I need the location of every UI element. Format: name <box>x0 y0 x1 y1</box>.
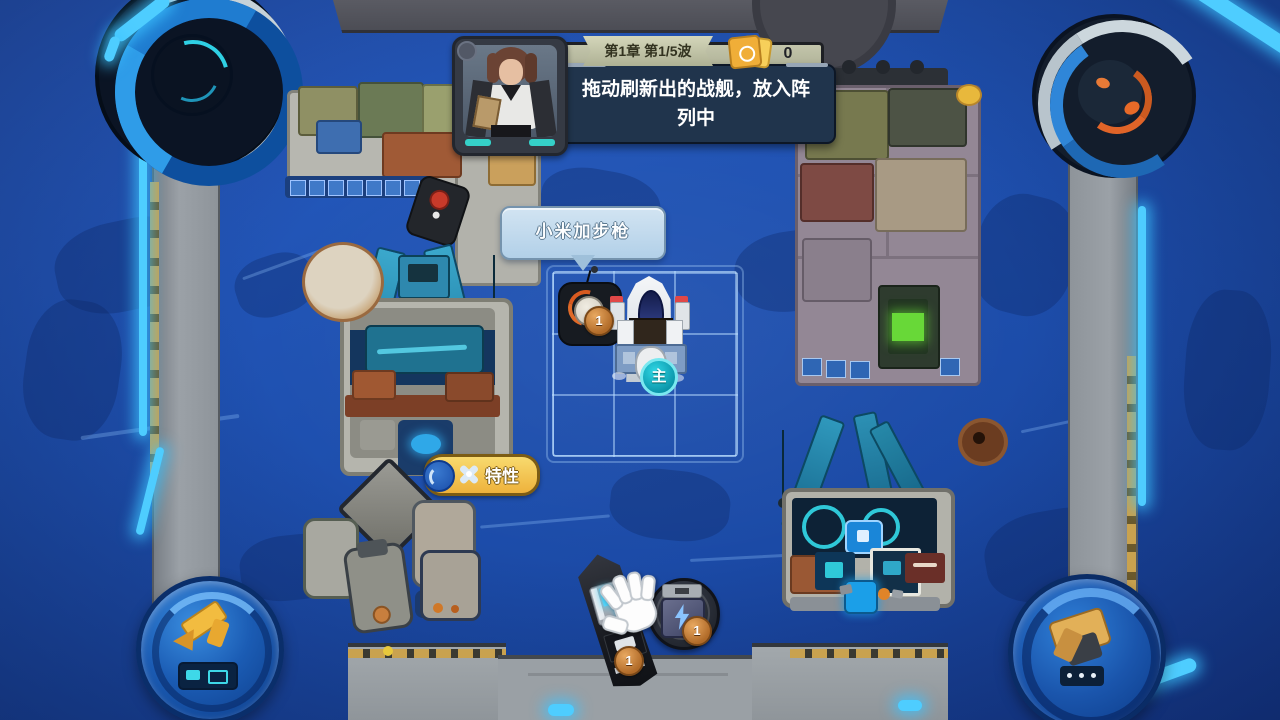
strip-tile <box>290 180 306 196</box>
cargo-container <box>445 372 494 402</box>
portrait-image <box>463 45 557 137</box>
tooltip-text: 小米加步枪 <box>502 208 664 258</box>
emblem-panel <box>178 662 238 690</box>
corner-emblem-bottom-left <box>136 576 274 714</box>
tug-funnel <box>427 187 452 212</box>
advisor-portrait <box>452 36 568 156</box>
strip-tile <box>850 361 870 379</box>
tile-glyph <box>883 561 901 575</box>
bronze-dot <box>372 605 392 625</box>
cab-window <box>408 264 438 282</box>
gold-shell <box>956 84 982 106</box>
card-count: 0 <box>776 45 800 65</box>
deck-ring <box>802 505 846 549</box>
crate-cap <box>356 538 388 558</box>
panel-glyph <box>186 670 200 680</box>
wave-banner-text: 第1章 第1/5波 <box>583 36 713 66</box>
hazard-strip <box>348 649 506 658</box>
deck-tile <box>623 352 635 364</box>
machinery-pipe <box>377 345 467 355</box>
stern-glow <box>411 434 441 454</box>
portrait-face <box>499 59 523 85</box>
level-badge: 1 <box>682 616 712 646</box>
cargo-container <box>888 88 967 147</box>
wave-banner: 第1章 第1/5波 <box>583 36 713 66</box>
corner-emblem-bottom-right <box>1008 574 1156 720</box>
panel-dot <box>1091 673 1096 678</box>
debris <box>891 589 903 599</box>
grid-cell[interactable] <box>676 395 736 455</box>
portrait-emblem <box>457 41 477 61</box>
machinery-box <box>365 325 484 374</box>
coil-hole <box>973 432 985 444</box>
dock-icon-strip <box>285 176 431 198</box>
strip-tile <box>328 180 344 196</box>
emblem-panel <box>1060 666 1104 686</box>
strip-tile <box>826 360 846 378</box>
floating-crate <box>420 550 481 621</box>
corner-turret-top-right <box>1032 14 1188 170</box>
glow-rail-right <box>1138 206 1146 506</box>
cargo-container <box>875 158 967 232</box>
orb-highlight <box>429 466 451 488</box>
portrait-accent-bar <box>529 139 555 146</box>
trait-cross-icon <box>457 462 481 486</box>
strip-tile <box>940 358 960 376</box>
tooltip-pointer <box>571 255 595 271</box>
strip-tile <box>366 180 382 196</box>
crane-cable <box>782 430 784 500</box>
card-icon <box>727 34 773 66</box>
portrait-accent-bar <box>465 139 491 146</box>
cargo-container <box>358 82 424 138</box>
cargo-container <box>802 238 872 302</box>
cargo-container <box>316 120 362 154</box>
arena-wall-bottom-left <box>348 643 506 720</box>
cross-center <box>466 471 472 477</box>
panel-dot <box>1067 673 1072 678</box>
trait-button[interactable]: 特性 <box>424 454 540 496</box>
green-container <box>878 285 940 369</box>
hazard-strip <box>1127 356 1136 608</box>
rail-bump <box>842 60 856 74</box>
hand-finger <box>640 574 657 601</box>
card-glyph <box>738 45 756 63</box>
crane-cab <box>398 255 450 299</box>
trait-label: 特性 <box>485 462 519 487</box>
glow-bump-bottom <box>898 700 922 711</box>
gold-dot <box>383 646 393 656</box>
green-glow-window <box>892 313 924 341</box>
portrait-hair-side <box>525 53 537 83</box>
level-badge: 1 <box>584 306 614 336</box>
corner-turret-top-left <box>95 0 283 166</box>
cargo-container <box>352 370 396 400</box>
portrait-hair-side <box>487 53 499 83</box>
cargo-container <box>382 132 462 178</box>
red-panel <box>905 553 945 583</box>
orange-dot <box>433 603 443 613</box>
bracket-slot <box>675 588 689 594</box>
cargo-container <box>800 163 874 222</box>
hazard-strip <box>150 182 159 474</box>
rail-bump <box>876 60 890 74</box>
strip-tile <box>309 180 325 196</box>
portrait-skirt <box>491 125 531 137</box>
hazard-strip <box>790 649 948 658</box>
tile-glyph <box>857 530 869 542</box>
grid-cell[interactable] <box>615 395 675 455</box>
dialogue-text: 拖动刷新出的战舰，放入阵列中 <box>576 76 816 133</box>
tug-light <box>432 211 441 220</box>
main-badge: 主 <box>640 358 678 396</box>
wake-foam <box>612 372 626 380</box>
trait-orb-icon <box>423 460 455 492</box>
panel-glyph <box>208 670 228 684</box>
game-stage: 1 主 小米加步枪 特性 <box>0 0 1280 720</box>
unit-tooltip: 小米加步枪 <box>500 206 666 260</box>
fuel-tank <box>302 242 384 322</box>
floating-crate <box>342 541 414 635</box>
panel-dash <box>913 563 937 567</box>
crane-barge-bottom-right <box>770 405 955 620</box>
grid-cell[interactable] <box>554 395 614 455</box>
strip-tile <box>802 358 822 376</box>
panel-glyph <box>825 562 843 578</box>
card-front <box>727 34 762 69</box>
rope-coil <box>958 418 1008 466</box>
orange-dot <box>451 605 459 613</box>
glow-bump-bottom <box>548 704 574 716</box>
orange-dot <box>878 588 890 600</box>
rail-bump <box>910 60 924 74</box>
tutorial-dialogue: 拖动刷新出的战舰，放入阵列中 <box>556 64 836 144</box>
strip-tile <box>385 180 401 196</box>
barge-step <box>360 420 395 450</box>
panel-dot <box>1079 673 1084 678</box>
strip-tile <box>347 180 363 196</box>
